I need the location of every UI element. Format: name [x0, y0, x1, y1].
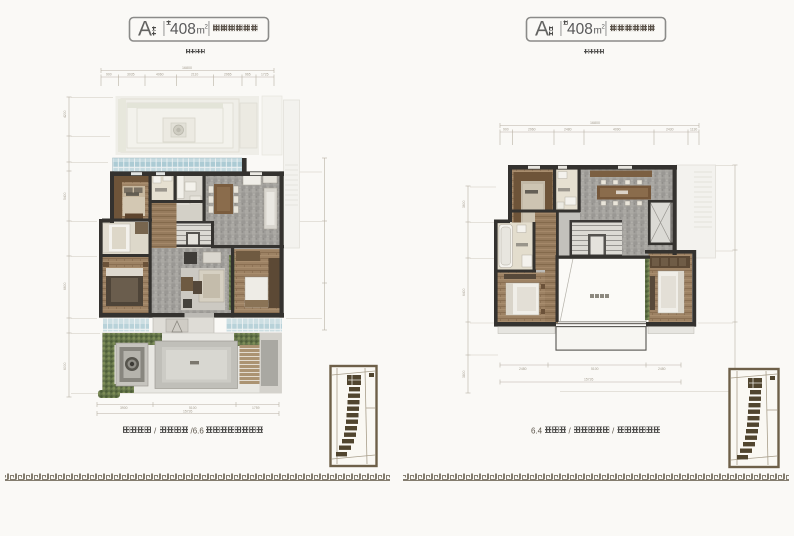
svg-text:2480: 2480: [564, 128, 572, 132]
svg-text:2480: 2480: [519, 367, 527, 371]
svg-text:1725: 1725: [261, 73, 269, 77]
svg-text:2480: 2480: [658, 367, 666, 371]
svg-text:2110: 2110: [191, 73, 198, 77]
svg-text:6000: 6000: [63, 362, 67, 370]
svg-text:408: 408: [170, 21, 196, 38]
svg-text:3900: 3900: [120, 406, 128, 410]
svg-text:2965: 2965: [224, 73, 232, 77]
svg-text:A: A: [138, 18, 152, 41]
svg-text:A: A: [535, 18, 549, 41]
svg-text:3035: 3035: [127, 73, 135, 77]
svg-text:6600: 6600: [63, 282, 67, 290]
svg-text:1759: 1759: [252, 406, 260, 410]
svg-text:4200: 4200: [63, 110, 67, 118]
svg-text:16800: 16800: [590, 121, 600, 125]
svg-text:408: 408: [567, 21, 593, 38]
svg-text:3800: 3800: [462, 370, 466, 378]
svg-text:2960: 2960: [528, 128, 536, 132]
svg-text:5100: 5100: [591, 367, 599, 371]
svg-text:4090: 4090: [613, 128, 621, 132]
svg-text:2430: 2430: [666, 128, 674, 132]
svg-text:6.4: 6.4: [531, 427, 543, 436]
svg-text:3600: 3600: [462, 200, 466, 208]
svg-text:1130: 1130: [690, 128, 697, 132]
svg-text:/6.6: /6.6: [191, 427, 205, 436]
svg-text:15726: 15726: [584, 378, 594, 382]
svg-text:6400: 6400: [462, 288, 466, 296]
svg-text:16800: 16800: [182, 66, 192, 70]
svg-text:900: 900: [503, 128, 509, 132]
svg-text:15726: 15726: [183, 409, 193, 413]
svg-text:900: 900: [106, 73, 112, 77]
svg-text:5400: 5400: [63, 192, 67, 200]
svg-text:4060: 4060: [156, 73, 164, 77]
svg-text:965: 965: [245, 73, 251, 77]
